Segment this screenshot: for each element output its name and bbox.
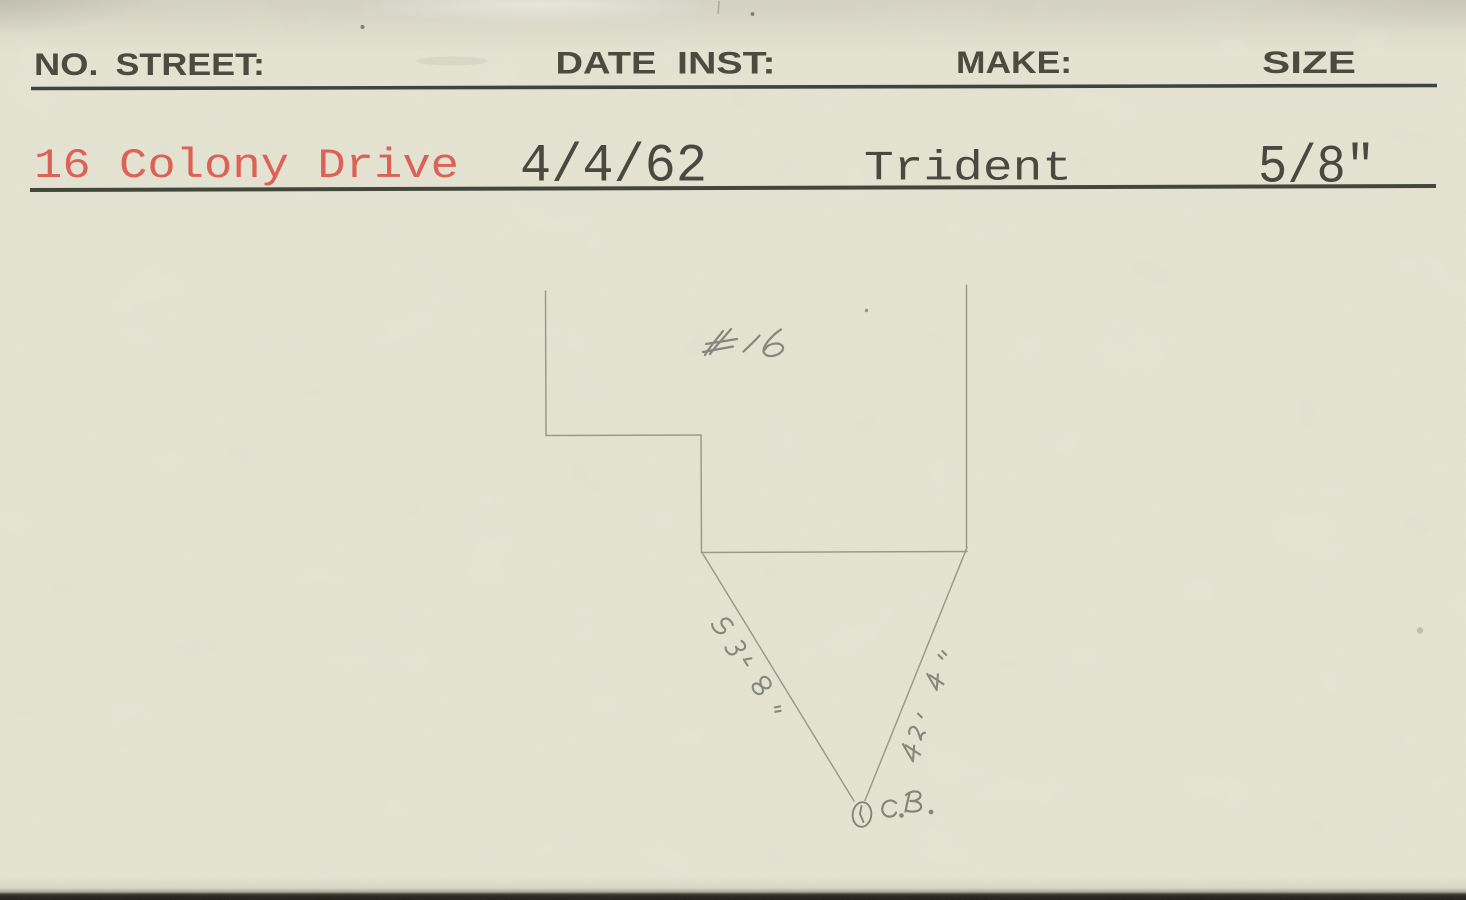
svg-text:Trident: Trident [864, 145, 1072, 193]
svg-text:4/4/62: 4/4/62 [520, 137, 707, 198]
svg-text:DATE: DATE [556, 45, 657, 81]
svg-text:16 Colony Drive: 16 Colony Drive [34, 142, 459, 190]
svg-text:MAKE:: MAKE: [956, 44, 1072, 80]
svg-text:5/8": 5/8" [1258, 138, 1375, 199]
svg-text:INST:: INST: [677, 45, 776, 81]
svg-text:SIZE: SIZE [1262, 44, 1356, 80]
svg-text:NO.: NO. [34, 46, 99, 82]
svg-text:STREET:: STREET: [116, 46, 266, 82]
